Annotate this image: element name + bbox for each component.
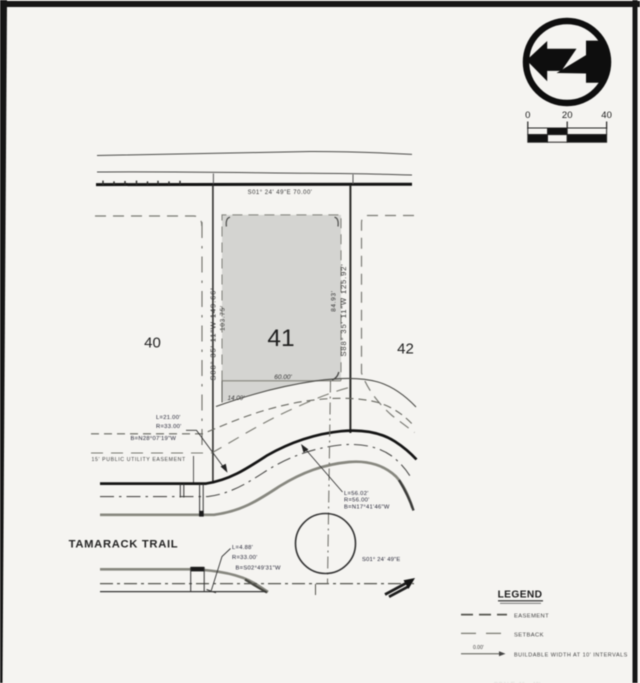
svg-text:15' PUBLIC UTILITY EASEMENT: 15' PUBLIC UTILITY EASEMENT — [92, 457, 187, 463]
svg-text:20: 20 — [562, 110, 573, 121]
svg-text:S01° 24' 49"E: S01° 24' 49"E — [362, 557, 400, 563]
svg-text:0: 0 — [525, 110, 530, 121]
svg-text:TAMARACK TRAIL: TAMARACK TRAIL — [69, 538, 179, 550]
svg-text:EASEMENT: EASEMENT — [514, 614, 549, 620]
svg-text:R=33.00': R=33.00' — [232, 555, 258, 561]
svg-text:S88° 35' 11"W 125.92': S88° 35' 11"W 125.92' — [339, 263, 348, 356]
svg-text:41: 41 — [267, 325, 294, 352]
svg-text:S88° 35' 11"W 149.66': S88° 35' 11"W 149.66' — [209, 287, 218, 380]
svg-text:L=21.00': L=21.00' — [156, 415, 181, 421]
svg-text:L=4.88': L=4.88' — [232, 545, 253, 551]
svg-text:B=S02°49'31"W: B=S02°49'31"W — [236, 566, 282, 572]
svg-text:60.00': 60.00' — [274, 374, 292, 381]
svg-text:BUILDABLE WIDTH AT 10' INTERVA: BUILDABLE WIDTH AT 10' INTERVALS — [514, 652, 628, 658]
svg-text:R=56.00': R=56.00' — [344, 498, 370, 504]
svg-text:40: 40 — [144, 335, 161, 352]
svg-text:LEGEND: LEGEND — [498, 590, 543, 601]
svg-text:SETBACK: SETBACK — [514, 633, 544, 639]
svg-text:S01° 24' 49"E 70.00': S01° 24' 49"E 70.00' — [248, 190, 313, 196]
svg-text:L=56.02': L=56.02' — [344, 491, 369, 497]
svg-text:103.75': 103.75' — [219, 305, 226, 331]
svg-text:42: 42 — [397, 341, 414, 358]
svg-text:14.09': 14.09' — [228, 395, 246, 402]
svg-text:84.93': 84.93' — [331, 290, 338, 311]
svg-text:40: 40 — [601, 110, 612, 121]
svg-text:B=N17°41'46"W: B=N17°41'46"W — [344, 504, 390, 510]
svg-text:0.00': 0.00' — [473, 645, 484, 651]
svg-text:B=N28°07'19"W: B=N28°07'19"W — [131, 436, 177, 442]
svg-text:R=33.00': R=33.00' — [156, 424, 182, 430]
